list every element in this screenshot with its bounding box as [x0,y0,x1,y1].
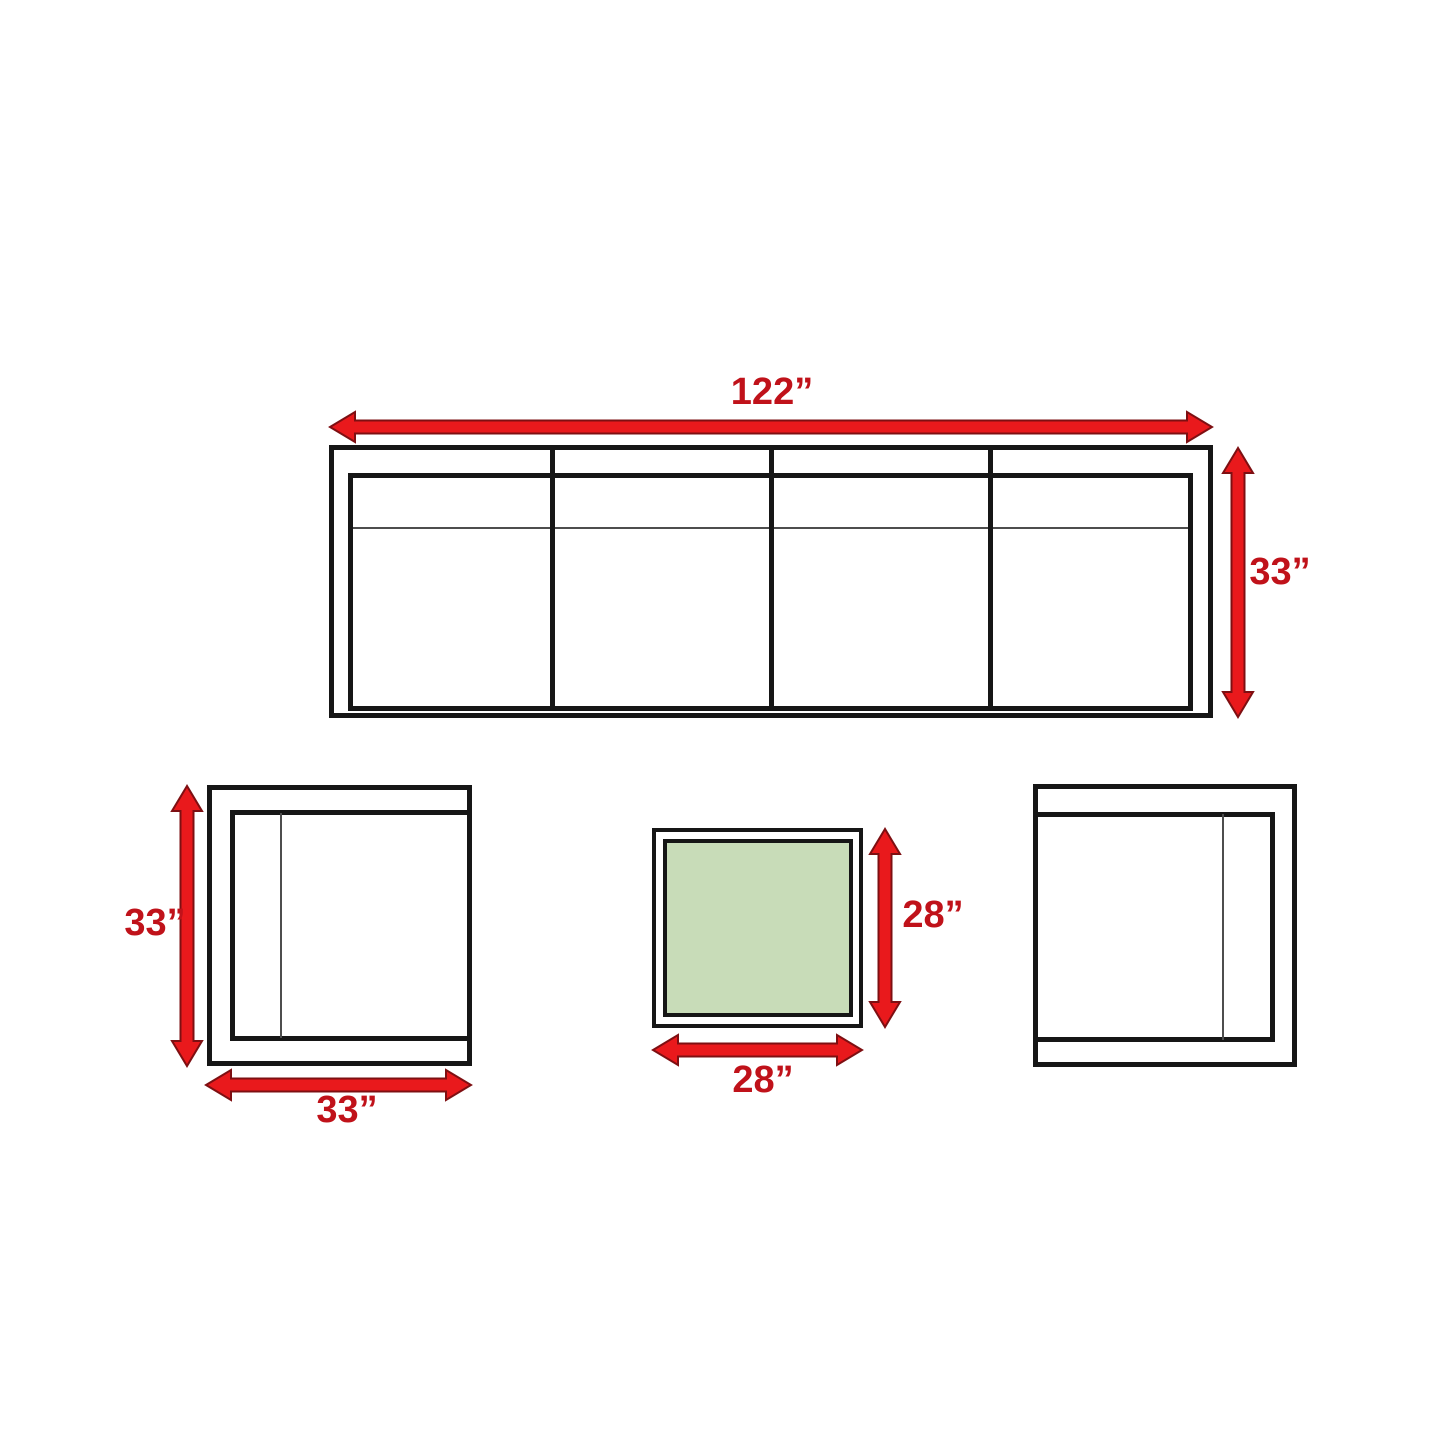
armchair-right-cushion-line [1222,814,1224,1040]
armchair-left-seat-outline [230,810,467,1041]
coffee-table-top [663,839,853,1017]
sofa-depth-label: 33” [1235,552,1325,594]
diagram-canvas: 122” 33” 33” 33” 28” 28” [0,0,1445,1445]
coffee-table-width-label: 28” [713,1060,813,1102]
sofa-seat-divider [769,445,774,711]
sofa-seat-divider [550,445,555,711]
armchair-left-depth-label: 33” [105,903,205,945]
sofa-seat-divider [988,445,993,711]
sofa-width-arrow [329,410,1213,444]
armchair-right-seat-outline [1038,812,1275,1042]
armchair-left-width-label: 33” [297,1090,397,1132]
coffee-table-depth-label: 28” [883,895,983,937]
sofa-width-label: 122” [672,372,872,414]
armchair-left-cushion-line [280,813,282,1038]
